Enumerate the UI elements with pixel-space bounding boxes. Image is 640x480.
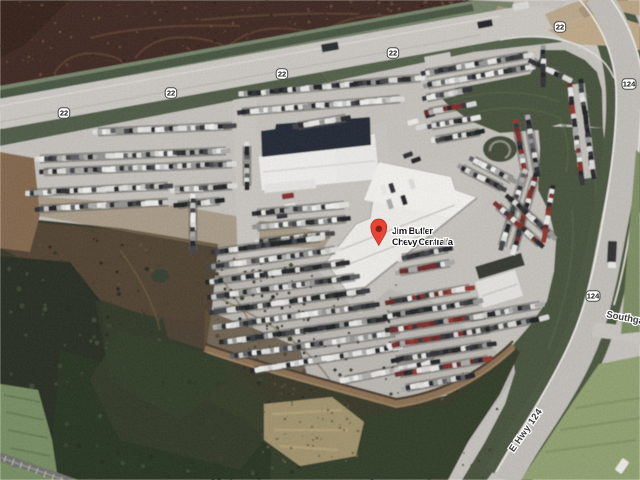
svg-text:22: 22: [167, 89, 175, 98]
svg-text:22: 22: [556, 23, 564, 32]
svg-text:124: 124: [623, 80, 636, 89]
svg-text:Jim Butler: Jim Butler: [392, 226, 433, 237]
svg-text:22: 22: [278, 70, 286, 79]
svg-text:Chevy Centralia: Chevy Centralia: [392, 237, 454, 248]
svg-text:22: 22: [389, 49, 397, 58]
svg-text:22: 22: [60, 109, 68, 118]
svg-text:124: 124: [587, 292, 600, 301]
